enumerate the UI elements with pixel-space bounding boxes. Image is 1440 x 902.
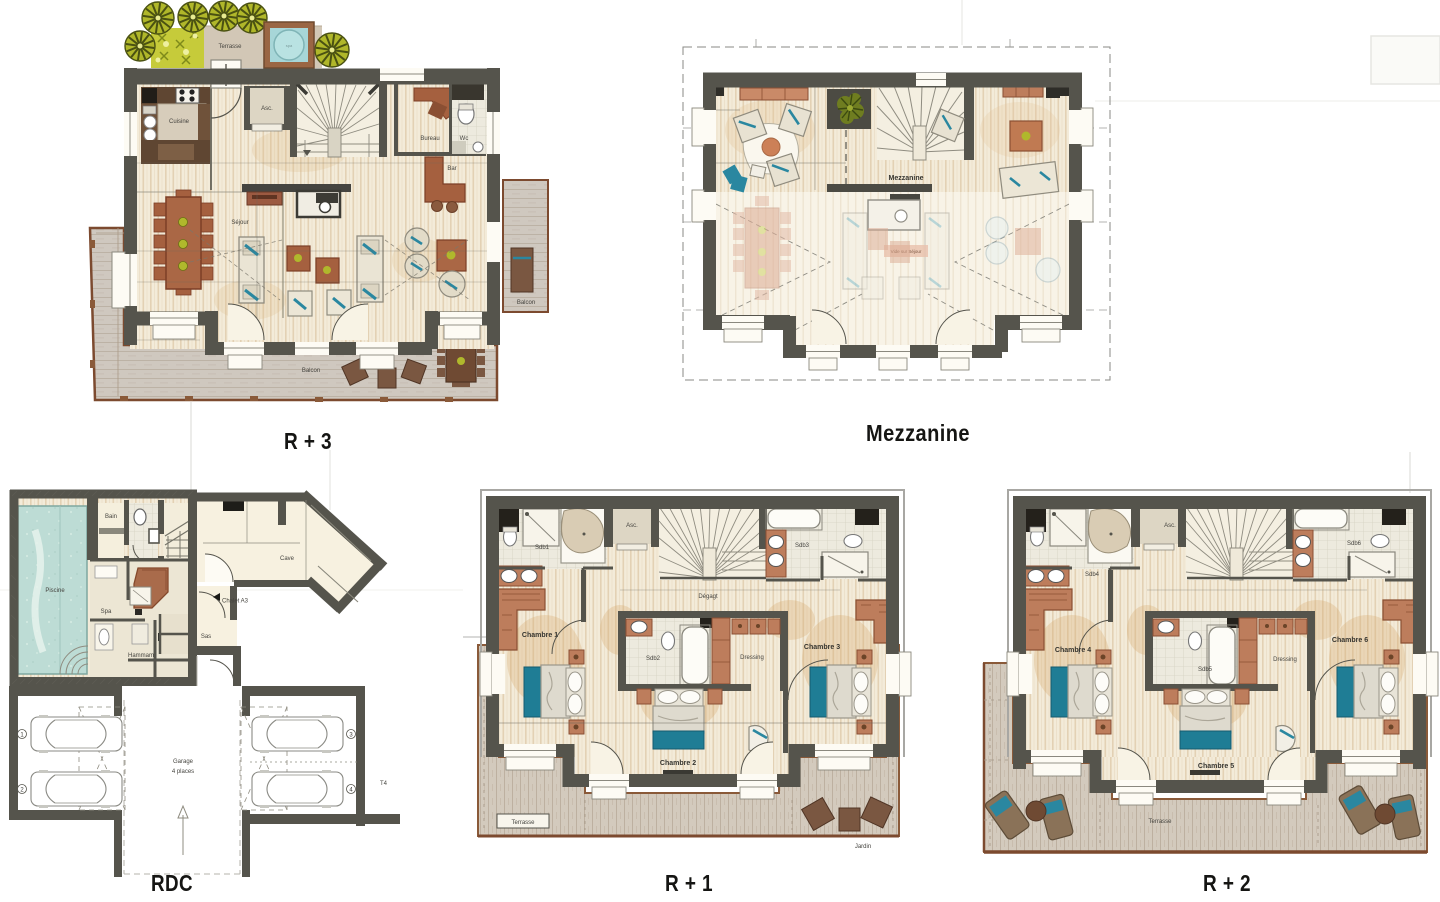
svg-text:Garage: Garage: [173, 759, 194, 765]
svg-text:Sdb1: Sdb1: [535, 545, 550, 551]
svg-text:Sdb5: Sdb5: [1198, 667, 1213, 673]
svg-text:Cave: Cave: [280, 556, 295, 562]
svg-text:RDC: RDC: [151, 870, 193, 896]
svg-text:Jardin: Jardin: [855, 844, 871, 850]
svg-text:Dégagt: Dégagt: [698, 594, 718, 600]
svg-text:Terrasse: Terrasse: [1148, 819, 1172, 825]
svg-text:Cuisine: Cuisine: [169, 119, 190, 125]
svg-text:Chambre 2: Chambre 2: [660, 760, 696, 767]
svg-text:Terrasse: Terrasse: [218, 44, 242, 50]
svg-text:Asc.: Asc.: [261, 106, 273, 112]
svg-text:Mezzanine: Mezzanine: [866, 420, 970, 446]
svg-text:Bar: Bar: [447, 166, 456, 172]
svg-text:R + 3: R + 3: [284, 428, 332, 454]
svg-text:Asc.: Asc.: [1164, 523, 1176, 529]
svg-text:Chambre 6: Chambre 6: [1332, 637, 1368, 644]
svg-text:Bureau: Bureau: [420, 136, 439, 142]
svg-text:Terrasse: Terrasse: [511, 820, 535, 826]
svg-text:Sdb3: Sdb3: [795, 543, 810, 549]
svg-text:4 places: 4 places: [172, 769, 194, 775]
svg-text:Sdb6: Sdb6: [1347, 541, 1362, 547]
svg-text:Dressing: Dressing: [1273, 657, 1297, 663]
svg-text:Asc.: Asc.: [626, 523, 638, 529]
svg-text:Mezzanine: Mezzanine: [888, 175, 923, 182]
svg-text:Spa: Spa: [101, 609, 112, 615]
svg-text:Hammam: Hammam: [128, 653, 154, 659]
svg-text:R + 1: R + 1: [665, 870, 713, 896]
svg-text:Chalet A3: Chalet A3: [222, 599, 249, 605]
svg-text:Chambre 5: Chambre 5: [1198, 763, 1234, 770]
svg-text:Bain: Bain: [105, 514, 117, 520]
svg-text:R + 2: R + 2: [1203, 870, 1251, 896]
svg-text:Dressing: Dressing: [740, 655, 764, 661]
svg-text:spa: spa: [286, 43, 293, 48]
svg-text:T4: T4: [380, 781, 388, 787]
svg-text:Sdb2: Sdb2: [646, 656, 661, 662]
svg-text:Chambre 1: Chambre 1: [522, 632, 558, 639]
svg-text:Piscine: Piscine: [45, 588, 65, 594]
svg-text:Chambre 4: Chambre 4: [1055, 647, 1091, 654]
svg-text:Balcon: Balcon: [302, 368, 320, 374]
svg-text:Chambre 3: Chambre 3: [804, 644, 840, 651]
svg-text:Sdb4: Sdb4: [1085, 572, 1100, 578]
svg-text:Sas: Sas: [201, 634, 211, 640]
svg-text:Balcon: Balcon: [517, 300, 535, 306]
svg-text:Séjour: Séjour: [231, 220, 248, 226]
